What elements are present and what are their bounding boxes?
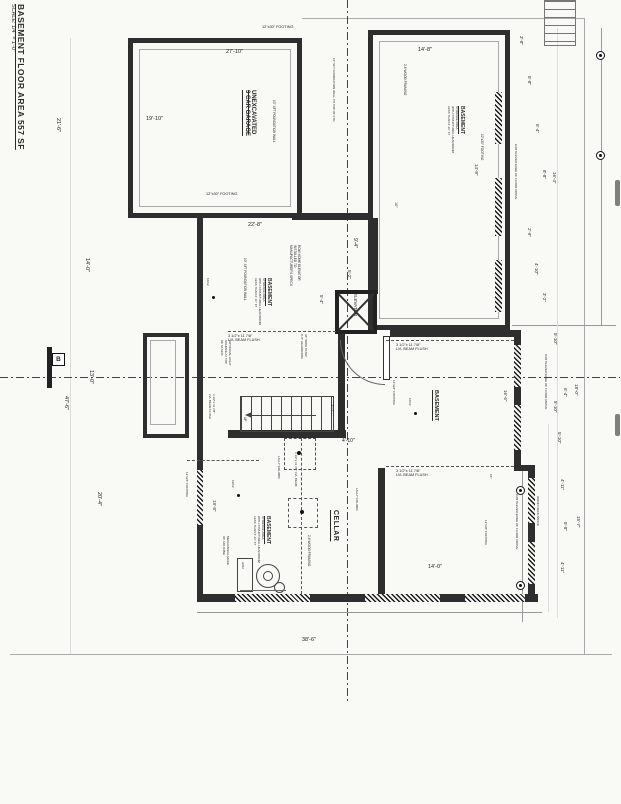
stair-arrow-line bbox=[252, 415, 316, 416]
footing-note: 12"x30" FOOTING bbox=[262, 25, 293, 29]
scan-smudge bbox=[615, 180, 620, 206]
page-title: BASEMENT FLOOR AREA 557 SF bbox=[16, 4, 26, 150]
marker-dot bbox=[414, 412, 417, 415]
scan-smudge bbox=[615, 414, 620, 436]
dim-label: 4'-10" bbox=[534, 263, 539, 274]
footing-note: 12"x24" FOOTING bbox=[185, 472, 189, 497]
lvl-beam-label: 3 1/2"x 11 7/8" LVL BEAM FLUSH bbox=[396, 469, 428, 477]
garage-label-line1: UNEXCAVATED bbox=[250, 90, 256, 136]
deck-post bbox=[516, 581, 525, 590]
section-marker-label: B bbox=[52, 353, 65, 366]
dim-label: 19'-8" bbox=[212, 500, 217, 511]
dim-label: 14'-8" bbox=[418, 47, 432, 53]
lvl-beam-note: 3 1/2"x 11 7/8" LVL BEAM bbox=[294, 452, 298, 486]
stairs bbox=[240, 396, 334, 432]
mech-note-line: MECHANICAL MAKE bbox=[226, 536, 230, 565]
dim-label: 20'-4" bbox=[96, 492, 102, 506]
left-foundation-wall bbox=[197, 218, 203, 600]
dim-label: 6'-4" bbox=[535, 124, 540, 133]
dim-label: 47'-6" bbox=[63, 396, 69, 410]
deck-stairs bbox=[544, 0, 576, 46]
dim-label: 19'-10" bbox=[146, 116, 163, 122]
floorplan-canvas: ELEVATOR UP HWH B BASEMENT FLOOR AREA 55… bbox=[0, 0, 621, 804]
section-letter: B bbox=[56, 356, 61, 363]
deck-edge-line bbox=[548, 424, 549, 612]
storage-note-block: BASEMENT STORAGE AREA WITH STRUCTURAL HE… bbox=[253, 516, 271, 563]
garage-inner-line bbox=[139, 49, 291, 207]
left-dim-line bbox=[70, 38, 71, 654]
dim-label: 5'-10" bbox=[553, 401, 558, 412]
dim-label: 27'-10" bbox=[226, 49, 243, 55]
wall-hatch bbox=[514, 405, 521, 450]
dim-label: 5'-4" bbox=[319, 295, 324, 304]
dim-label: 14'-8" bbox=[474, 164, 479, 175]
top-boundary-line bbox=[302, 18, 584, 19]
footing-note: 12"x30" FOOTING bbox=[480, 134, 484, 160]
cantilever-note: CANTILEVER EDGE OF FLOOR ABOVE bbox=[515, 494, 519, 549]
cantilever-note: CANTILEVER EDGE OF FLOOR ABOVE bbox=[514, 144, 518, 199]
dim-label: 4'-11" bbox=[560, 562, 565, 573]
elevator-label: ELEVATOR bbox=[353, 293, 358, 316]
stair-note-line: 36" WIDE STAIR bbox=[304, 334, 308, 358]
elevator-spec-line: MANUFACTURER'S SPECS bbox=[289, 245, 293, 286]
cantilever-note: CANTILEVER EDGE OF FLOOR ABOVE bbox=[544, 354, 548, 409]
dim-label: 8'-8" bbox=[542, 170, 547, 179]
foundation-wall-note: 10" SFT FOUNDATION WALL bbox=[272, 100, 276, 143]
dim-label: 6'-4" bbox=[563, 388, 568, 397]
dim-label: 4'-10" bbox=[342, 438, 355, 444]
dim-label: 16'-6" bbox=[503, 390, 508, 401]
lally-column-note: LALLY COLUMN bbox=[355, 488, 359, 511]
mechanical-note: MECHANICAL MAKE UP AIR ZONE bbox=[222, 536, 230, 565]
wall-hatch bbox=[528, 478, 535, 523]
foundation-wall-ftg-note: 10" SFT FOUNDATION WALL TO TOP OF FTG bbox=[332, 58, 336, 122]
tank-small-circle bbox=[274, 582, 285, 593]
light-note-line: SOURCE AT TOP bbox=[224, 340, 228, 366]
stair-up-label: UP bbox=[243, 417, 247, 421]
dim-label: 5'-2" bbox=[347, 270, 352, 279]
dim-label: 18'-0" bbox=[574, 384, 579, 395]
lvl-beam-size: 3 1/2"x 11 7/8" bbox=[212, 394, 216, 419]
dim-label: 10" bbox=[394, 202, 398, 208]
wall-hatch bbox=[365, 594, 440, 602]
storage-room-name: BASEMENT bbox=[266, 278, 272, 325]
dim-label: 9'-4" bbox=[352, 238, 358, 248]
dim-label: 5'-8" bbox=[527, 76, 532, 85]
footing-note: 12"x30" FOOTING bbox=[206, 192, 237, 196]
wood-framing-note: 2-6 WOOD FRAMING bbox=[403, 64, 407, 95]
marker-dot bbox=[237, 494, 240, 497]
dim-label: 3'-2" bbox=[542, 293, 547, 302]
elevator-spec-line: ROW HOME ELEVATOR bbox=[297, 245, 301, 286]
slope-marker: 10/12 bbox=[408, 398, 412, 406]
light-note-line: ARTIFICIAL LIGHT bbox=[228, 340, 232, 366]
post-line-upper bbox=[601, 28, 602, 326]
bottom-footing-line bbox=[197, 612, 542, 613]
sheet-title-block: BASEMENT FLOOR AREA 557 SF SCALE: 1/4" =… bbox=[10, 4, 26, 150]
garage-label-line2: 3 CAR GARAGE bbox=[244, 90, 250, 136]
dim-label: 21'-6" bbox=[55, 118, 61, 132]
lvl-beam-label-vertical: 3 1/2"x 11 7/8" LVL BEAM FLUSH bbox=[208, 394, 216, 419]
dim-label: 14'-0" bbox=[84, 258, 90, 272]
lvl-beam-flush: LVL BEAM FLUSH bbox=[228, 338, 260, 342]
lvl-beam-label: 3 1/2"x 11 7/8" LVL BEAM FLUSH bbox=[396, 343, 428, 351]
wall-hatch bbox=[197, 470, 203, 525]
garage-room-label: UNEXCAVATED 3 CAR GARAGE bbox=[244, 90, 256, 136]
storage-note-line: WITH STRUCTURAL HEADROOM bbox=[451, 106, 455, 153]
tank-circle-inner bbox=[263, 571, 273, 581]
marker-dot bbox=[212, 296, 215, 299]
basement-storage-inner-line bbox=[379, 41, 499, 319]
footing-note: 12"x24" FOOTING bbox=[392, 380, 396, 405]
artificial-light-note: ARTIFICIAL LIGHT SOURCE AT TOP OF STAIRS bbox=[220, 340, 232, 366]
dim-label: 5'-8" bbox=[563, 522, 568, 531]
foundation-wall-note: 10" SFT FOUNDATION WALL bbox=[243, 258, 247, 301]
right-dim-line bbox=[557, 28, 558, 618]
lally-column-dot bbox=[300, 510, 304, 514]
wall-hatch bbox=[235, 594, 310, 602]
dim-label: 3'-2" bbox=[330, 404, 335, 413]
deck-post bbox=[596, 151, 605, 160]
lvl-beam-flush: LVL BEAM FLUSH bbox=[208, 394, 212, 419]
footing-note: 12"x30" FOOTING bbox=[484, 520, 488, 545]
dim-label: 4'-11" bbox=[560, 479, 565, 490]
dim-label: 14'-0" bbox=[428, 564, 442, 570]
lvl-beam-line bbox=[228, 331, 336, 333]
wall-hatch bbox=[495, 260, 502, 312]
wall-hatch bbox=[514, 345, 521, 387]
dim-label: 5'-10" bbox=[557, 432, 562, 443]
storage-room-name: BASEMENT bbox=[265, 516, 271, 563]
dim-label: 22'-8" bbox=[248, 222, 262, 228]
storage-note-block: BASEMENT STORAGE AREA WITH STRUCTURAL HE… bbox=[254, 278, 272, 325]
dim-label: 3'-8" bbox=[519, 36, 524, 45]
elevator-spec-note: ROW HOME ELEVATOR INSTALLED TO MANUFACTU… bbox=[289, 245, 301, 286]
dim-label: 38'-6" bbox=[302, 637, 316, 643]
storage-note-line: WITH STRUCTURAL HEADROOM bbox=[258, 278, 262, 325]
water-heater-box bbox=[237, 558, 253, 592]
door-leaf bbox=[383, 336, 390, 380]
wall-storage-left-ext bbox=[371, 218, 378, 294]
water-heater-label: HWH bbox=[241, 562, 245, 569]
wall-hatch bbox=[465, 594, 525, 602]
lvl-beam-label: 3 1/2"x 11 7/8" LVL BEAM FLUSH bbox=[228, 334, 260, 342]
wall-hatch bbox=[495, 92, 502, 144]
beam-line-short bbox=[187, 460, 259, 462]
pipe-line bbox=[240, 590, 286, 591]
dim-label: 5'-10" bbox=[553, 333, 558, 344]
wood-deck-note: WOOD DECK ABOVE bbox=[536, 496, 540, 526]
lally-column-note: LALLY COLUMN bbox=[277, 456, 281, 479]
deck-post bbox=[596, 51, 605, 60]
slope-marker: 10/12 bbox=[231, 480, 235, 488]
bottom-boundary-line bbox=[10, 654, 612, 655]
dim-label: 15'-7" bbox=[576, 516, 581, 527]
wall-hatch bbox=[528, 542, 535, 584]
dim-label: 10" bbox=[489, 474, 493, 478]
wall-hatch bbox=[495, 178, 502, 236]
basement-room-top-wall bbox=[390, 330, 520, 337]
lvl-beam-line bbox=[386, 340, 514, 342]
storage-room-name: BASEMENT bbox=[459, 106, 465, 153]
storage-note-line: WITH STRUCTURAL HEADROOM bbox=[257, 516, 261, 563]
basement-room-label: BASEMENT bbox=[433, 390, 439, 421]
stair-note: 36" WIDE STAIR 6'-8" HEADROOM bbox=[300, 334, 308, 358]
dim-label: 2'-9" bbox=[527, 228, 532, 237]
bumpout-inner-line bbox=[150, 340, 176, 425]
storage-note-block: BASEMENT STORAGE AREA WITH STRUCTURAL HE… bbox=[447, 106, 465, 153]
dim-label: 13'-0" bbox=[88, 370, 94, 384]
cellar-divider-wall bbox=[378, 468, 385, 594]
wood-framing-note: 2-6 WOOD FRAMING bbox=[307, 535, 311, 566]
lvl-beam-flush: LVL BEAM FLUSH bbox=[396, 347, 428, 351]
lvl-beam-flush: LVL BEAM FLUSH bbox=[396, 473, 428, 477]
slope-marker: 10/12 bbox=[206, 278, 210, 286]
dim-label: 16'-4" bbox=[552, 172, 557, 183]
stair-note-line: 6'-8" HEADROOM bbox=[300, 334, 304, 358]
lvl-beam-line bbox=[386, 466, 514, 468]
cellar-room-label: CELLAR bbox=[332, 510, 339, 541]
wall-garage-to-storage bbox=[292, 213, 372, 220]
right-boundary-line bbox=[584, 18, 585, 654]
